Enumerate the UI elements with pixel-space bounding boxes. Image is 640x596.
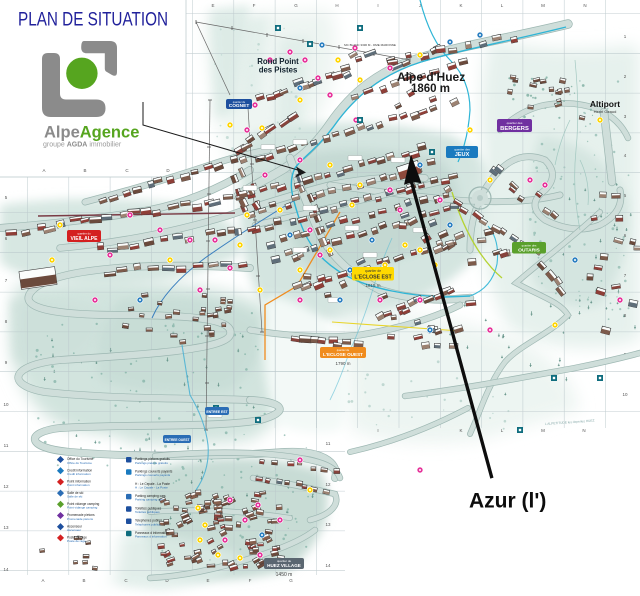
svg-text:11: 11	[4, 443, 9, 448]
svg-text:N: N	[583, 3, 586, 8]
svg-text:F: F	[249, 578, 252, 583]
svg-text:Ascenseur: Ascenseur	[67, 528, 81, 532]
svg-text:Poste de rage: Poste de rage	[67, 539, 86, 543]
svg-text:I: I	[377, 428, 378, 433]
svg-text:Parkings pietons gratuits: Parkings pietons gratuits	[135, 461, 168, 465]
svg-text:N: N	[582, 428, 585, 433]
svg-text:H: H	[335, 3, 338, 8]
svg-text:1860 m: 1860 m	[411, 83, 450, 95]
svg-text:Point vidange camping: Point vidange camping	[67, 506, 98, 510]
svg-text:K: K	[459, 428, 462, 433]
svg-text:1815 m: 1815 m	[365, 283, 380, 288]
svg-text:E: E	[211, 3, 214, 8]
svg-text:F: F	[253, 3, 256, 8]
svg-text:Point information: Point information	[67, 483, 90, 487]
svg-text:Office du Tourisme: Office du Tourisme	[67, 461, 92, 465]
svg-text:I: I	[377, 3, 378, 8]
svg-text:Altiport: Altiport	[590, 99, 620, 109]
svg-text:A: A	[42, 168, 45, 173]
svg-text:MC BLANC 3330 M - DME MARONNE: MC BLANC 3330 M - DME MARONNE	[344, 43, 396, 47]
svg-text:AlpeAgence: AlpeAgence	[44, 124, 139, 142]
svg-text:Panneaux d information: Panneaux d information	[135, 535, 167, 539]
svg-text:des Pistes: des Pistes	[259, 66, 298, 75]
svg-text:ENTREE EST: ENTREE EST	[206, 410, 228, 414]
svg-text:JEUX: JEUX	[455, 152, 470, 158]
svg-text:Parkings couverts payants: Parkings couverts payants	[135, 473, 171, 477]
svg-text:ENTREE OUEST: ENTREE OUEST	[165, 438, 190, 442]
svg-text:E: E	[206, 578, 209, 583]
svg-text:G: G	[294, 3, 298, 8]
svg-text:M: M	[541, 428, 545, 433]
svg-text:11: 11	[326, 441, 331, 446]
svg-text:Salle de ski: Salle de ski	[67, 494, 83, 498]
svg-text:quartier de: quartier de	[365, 269, 381, 273]
svg-text:Azur (l'): Azur (l')	[469, 490, 546, 513]
svg-text:K: K	[459, 3, 462, 8]
svg-text:Henri Giraud: Henri Giraud	[594, 109, 617, 114]
svg-text:OUTARIS: OUTARIS	[518, 247, 540, 253]
svg-text:12: 12	[325, 482, 331, 487]
svg-text:10: 10	[3, 402, 9, 407]
svg-text:14: 14	[325, 563, 331, 568]
svg-text:PLAN DE SITUATION: PLAN DE SITUATION	[18, 10, 168, 31]
svg-text:A: A	[41, 578, 44, 583]
svg-text:B: B	[83, 168, 86, 173]
svg-text:M: M	[541, 3, 545, 8]
svg-text:Credit information: Credit information	[67, 472, 91, 476]
svg-text:VIEIL ALPE: VIEIL ALPE	[71, 236, 99, 242]
svg-text:H : Le Cepale - La Poste: H : Le Cepale - La Poste	[135, 485, 168, 489]
svg-text:Toilettes publiques: Toilettes publiques	[135, 510, 160, 514]
svg-text:Promenade pietons: Promenade pietons	[67, 517, 94, 521]
svg-text:14: 14	[3, 567, 9, 572]
svg-text:BERGERS: BERGERS	[500, 126, 529, 132]
svg-text:COGNET: COGNET	[229, 103, 250, 109]
svg-text:Telephones publics: Telephones publics	[135, 522, 161, 526]
svg-text:G: G	[289, 578, 293, 583]
svg-text:13: 13	[325, 522, 331, 527]
svg-text:quartier des: quartier des	[522, 243, 537, 247]
svg-text:L'ECLOSE OUEST: L'ECLOSE OUEST	[323, 352, 363, 357]
svg-text:1450 m: 1450 m	[276, 572, 293, 578]
svg-text:groupe AGDA immobilier: groupe AGDA immobilier	[43, 142, 122, 149]
svg-text:12: 12	[3, 484, 9, 489]
svg-text:13: 13	[3, 525, 9, 530]
svg-text:Parking camping cars: Parking camping cars	[135, 498, 164, 502]
svg-text:10: 10	[622, 392, 628, 397]
svg-text:1790 m: 1790 m	[335, 361, 350, 366]
svg-text:quartier des: quartier des	[507, 121, 523, 125]
svg-text:L'ECLOSE EST: L'ECLOSE EST	[354, 274, 392, 280]
svg-text:HUEZ VILLAGE: HUEZ VILLAGE	[267, 563, 301, 568]
svg-text:Alpe d'Huez: Alpe d'Huez	[397, 70, 465, 84]
svg-text:B: B	[82, 578, 85, 583]
